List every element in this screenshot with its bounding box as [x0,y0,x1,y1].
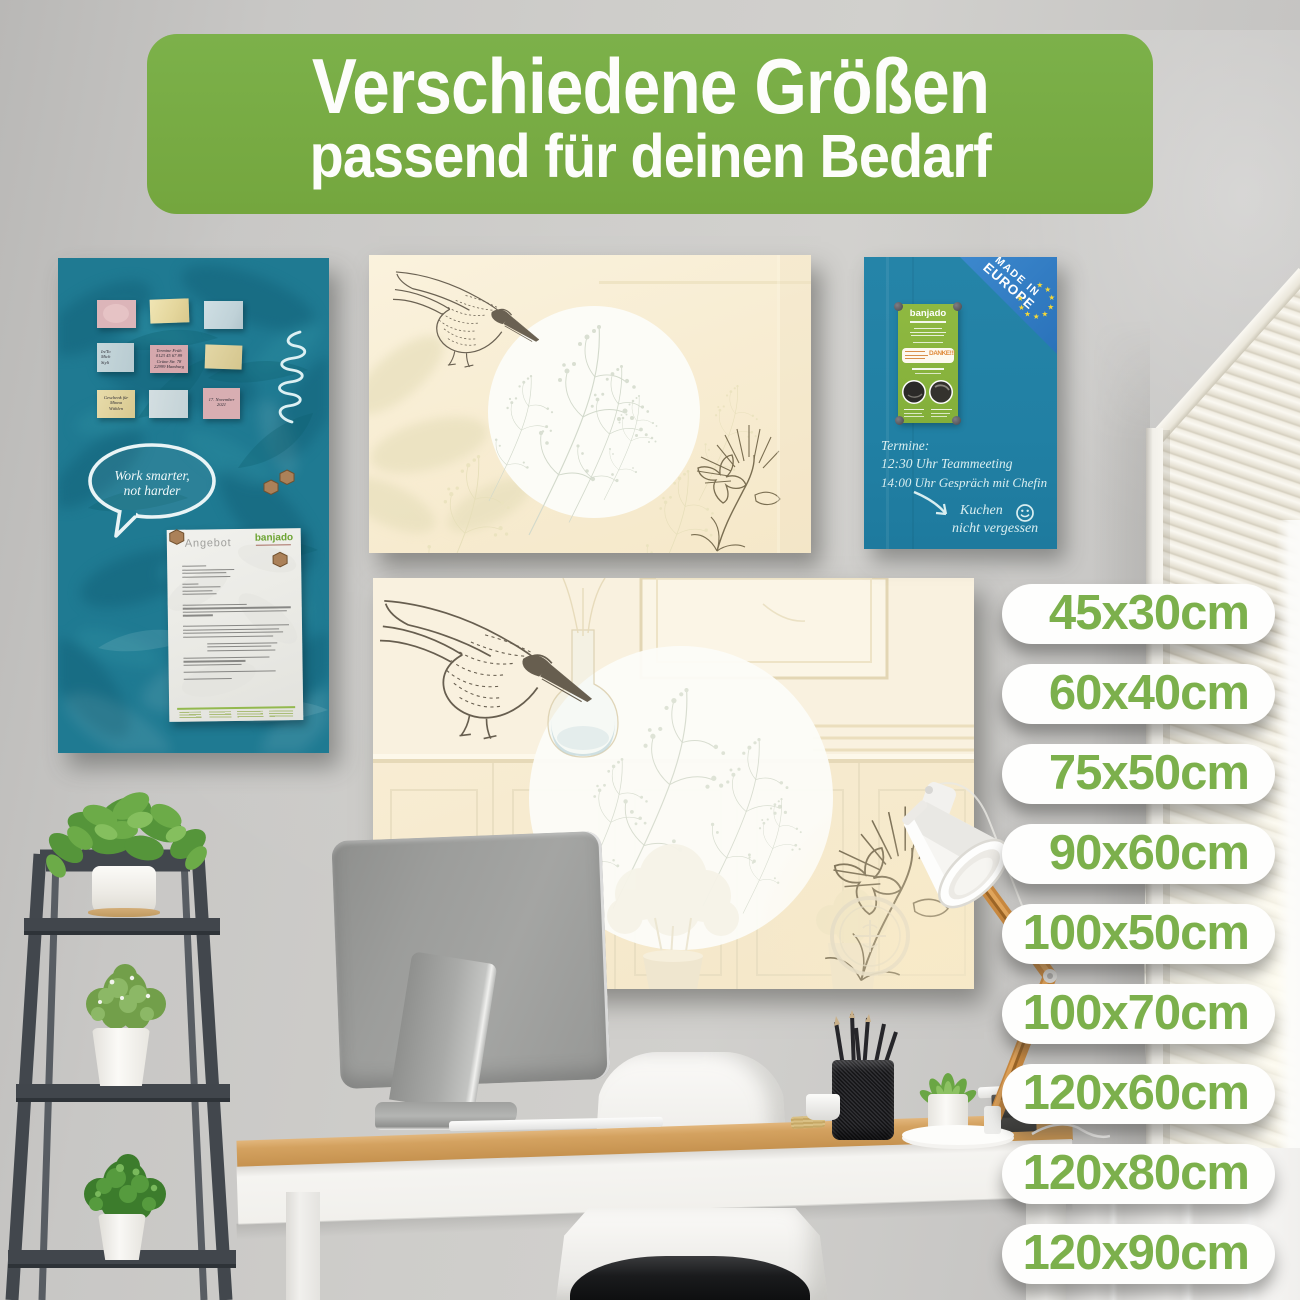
svg-text:★: ★ [1024,310,1031,319]
svg-text:★: ★ [1017,294,1024,303]
svg-text:★: ★ [1033,312,1040,321]
svg-text:★: ★ [1048,293,1055,302]
svg-text:★: ★ [1037,281,1044,290]
svg-text:★: ★ [1042,309,1049,318]
svg-text:★: ★ [1047,302,1054,311]
svg-text:★: ★ [1018,303,1025,312]
